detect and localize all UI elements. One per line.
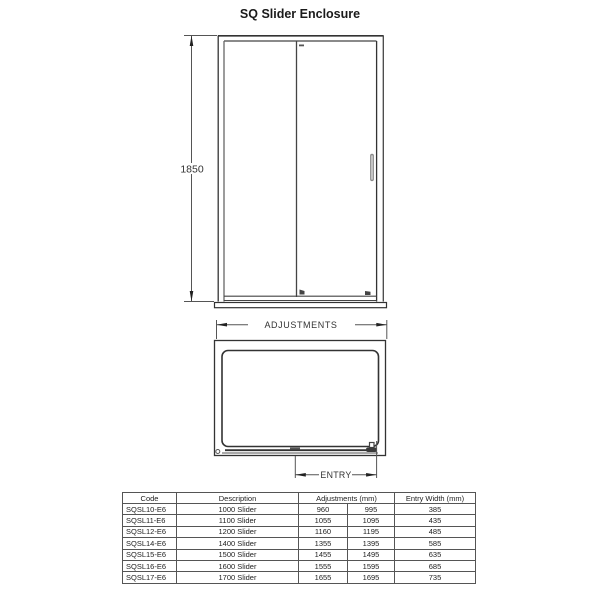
- svg-text:1850: 1850: [180, 164, 204, 176]
- svg-text:ENTRY: ENTRY: [320, 470, 351, 480]
- svg-text:ADJUSTMENTS: ADJUSTMENTS: [264, 320, 337, 330]
